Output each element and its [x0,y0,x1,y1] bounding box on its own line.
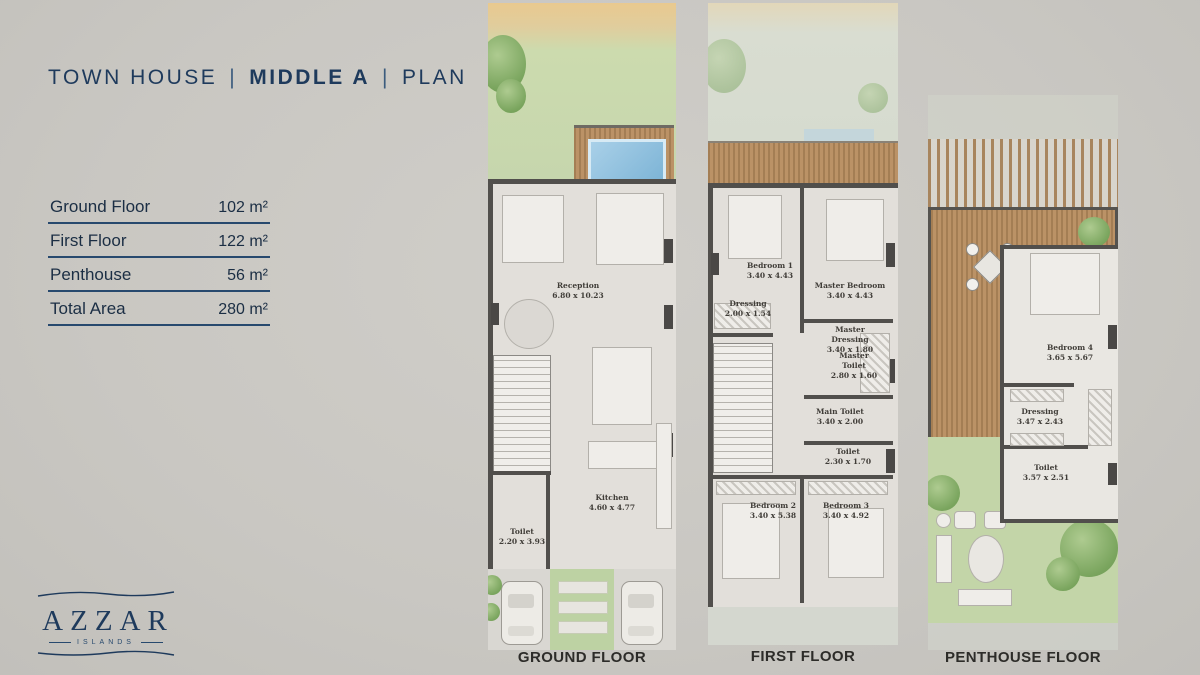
room-label-toilet: Toilet 2.20 x 3.93 [488,527,560,547]
dining-table [592,347,652,425]
room-dims: 3.40 x 4.92 [808,511,884,521]
paver [558,601,608,614]
garden-table [968,535,1004,583]
window [491,303,499,325]
round-seating [504,299,554,349]
garden-sofa [936,535,952,583]
room-label-dressing: Dressing 3.47 x 2.43 [1012,407,1068,427]
caption-penthouse-floor: PENTHOUSE FLOOR [928,649,1118,666]
wardrobe [1088,389,1112,446]
window [711,253,719,275]
car-windshield [508,594,534,608]
bed [826,199,884,261]
chair [966,278,979,291]
pergola-slats [928,139,1118,207]
wardrobe [716,481,796,495]
paver [558,581,608,594]
window [1108,463,1117,485]
room-label-main-toilet: Main Toilet 3.40 x 2.00 [815,407,865,427]
room-name: Kitchen [574,493,650,503]
staircase [713,343,773,473]
room-dims: 3.47 x 2.43 [1012,417,1068,427]
kitchen-island [588,441,658,469]
room-dims: 3.40 x 2.00 [815,417,865,427]
logo-brand-text: AZZAR [40,605,176,638]
room-label-reception: Reception 6.80 x 10.23 [540,281,616,301]
room-name: Bedroom 2 [735,501,811,511]
room-label-bedroom3: Bedroom 3 3.40 x 4.92 [808,501,884,521]
tree [858,83,888,113]
garden-sofa [958,589,1012,606]
interior-wall [1004,383,1074,387]
paver [558,621,608,634]
room-dims: 2.80 x 1.60 [827,371,881,381]
balcony-deck [708,141,898,183]
car [501,581,543,645]
room-name: Bedroom 4 [1032,343,1108,353]
logo-subtitle: ISLANDS [36,639,176,646]
interior-wall [804,395,893,399]
room-dims: 2.00 x 1.54 [718,309,778,319]
caption-first-floor: FIRST FLOOR [708,648,898,665]
room-label-master-toilet: Master Toilet 2.80 x 1.60 [827,351,881,380]
page-title: TOWN HOUSE | MIDDLE A | PLAN [48,66,467,90]
window [664,305,673,329]
room-label-bedroom1: Bedroom 1 3.40 x 4.43 [732,261,808,281]
row-label: Total Area [50,299,126,319]
wardrobe [808,481,888,495]
wardrobe [1010,433,1064,446]
room-dims: 3.40 x 4.43 [732,271,808,281]
front-strip-below [708,607,898,645]
room-name: Toilet [488,527,560,537]
room-dims: 3.40 x 4.43 [812,291,888,301]
room-name: Dressing [718,299,778,309]
room-dims: 3.65 x 5.67 [1032,353,1108,363]
logo-wave-top [36,589,176,599]
interior-wall [493,471,551,475]
table-row: Penthouse 56 m² [48,258,270,292]
table-row: Ground Floor 102 m² [48,190,270,224]
row-value: 102 m² [218,199,268,217]
interior-wall [800,183,804,333]
room-name: Master Dressing [823,325,877,345]
interior-wall [713,333,773,337]
window [886,449,895,473]
caption-ground-floor: GROUND FLOOR [488,649,676,666]
car-windshield [628,594,654,608]
logo-sub-text: ISLANDS [77,639,135,646]
title-separator: | [382,66,390,90]
car-rear-window [628,626,654,636]
room-name: Bedroom 1 [732,261,808,271]
title-product: TOWN HOUSE [48,66,217,90]
room-dims: 4.60 x 4.77 [574,503,650,513]
room-name: Toilet [821,447,875,457]
room-dims: 2.20 x 3.93 [488,537,560,547]
row-label: Ground Floor [50,197,150,217]
interior-wall [804,441,893,445]
room-label-bedroom4: Bedroom 4 3.65 x 5.67 [1032,343,1108,363]
room-name: Bedroom 3 [808,501,884,511]
table-row: First Floor 122 m² [48,224,270,258]
bed [1030,253,1100,315]
floor-below-ghost [928,623,1118,650]
row-value: 122 m² [218,233,268,251]
side-table [936,513,951,528]
area-table: Ground Floor 102 m² First Floor 122 m² P… [48,190,270,326]
logo-wave-bottom [36,649,176,659]
title-separator: | [229,66,237,90]
logo-rule [141,642,163,643]
title-variant: MIDDLE A [249,66,370,90]
room-label-kitchen: Kitchen 4.60 x 4.77 [574,493,650,513]
staircase [493,355,551,473]
floor-below-ghost [928,95,1118,139]
table-row: Total Area 280 m² [48,292,270,326]
kitchen-counter [656,423,672,529]
chair [966,243,979,256]
bush [1046,557,1080,591]
room-dims: 6.80 x 10.23 [540,291,616,301]
bed [728,195,782,259]
car [621,581,663,645]
room-dims: 2.30 x 1.70 [821,457,875,467]
interior-wall [804,319,893,323]
azzar-logo: AZZAR ISLANDS [36,586,176,664]
logo-rule [49,642,71,643]
room-label-toilet: Toilet 2.30 x 1.70 [821,447,875,467]
car-rear-window [508,626,534,636]
row-value: 56 m² [227,267,268,285]
wardrobe [1010,389,1064,402]
room-dims: 3.57 x 2.51 [1018,473,1074,483]
room-name: Toilet [1018,463,1074,473]
window [1108,325,1117,349]
bush [1078,217,1110,247]
room-name: Master Toilet [827,351,881,371]
swimming-pool [588,139,666,183]
interior-wall [800,475,804,603]
room-label-master-bedroom: Master Bedroom 3.40 x 4.43 [812,281,888,301]
sofa [502,195,564,263]
title-suffix: PLAN [402,66,467,90]
room-label-master-dressing: Master Dressing 3.40 x 1.80 [823,325,877,354]
row-label: Penthouse [50,265,131,285]
room-dims: 3.40 x 5.38 [735,511,811,521]
room-name: Reception [540,281,616,291]
room-name: Main Toilet [815,407,865,417]
room-label-dressing: Dressing 2.00 x 1.54 [718,299,778,319]
penthouse-floor-plan: Bedroom 4 3.65 x 5.67 Dressing 3.47 x 2.… [928,95,1118,650]
row-label: First Floor [50,231,127,251]
window [886,243,895,267]
room-name: Master Bedroom [812,281,888,291]
ground-floor-plan: Reception 6.80 x 10.23 Kitchen 4.60 x 4.… [488,3,676,650]
tree [496,79,526,113]
sofa [596,193,664,265]
lounge-chair [954,511,976,529]
first-floor-plan: Bedroom 1 3.40 x 4.43 Master Bedroom 3.4… [708,3,898,645]
row-value: 280 m² [218,301,268,319]
room-label-bedroom2: Bedroom 2 3.40 x 5.38 [735,501,811,521]
room-label-toilet: Toilet 3.57 x 2.51 [1018,463,1074,483]
room-name: Dressing [1012,407,1068,417]
interior-wall [546,471,550,569]
window [664,239,673,263]
